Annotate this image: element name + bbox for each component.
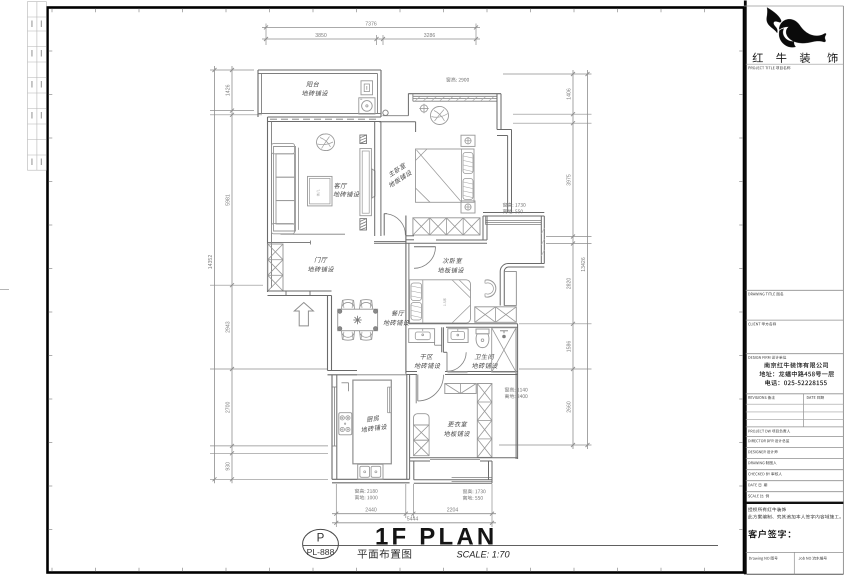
svg-text:SCALE: 1:70: SCALE: 1:70 bbox=[457, 550, 511, 560]
svg-text:7376: 7376 bbox=[365, 21, 377, 27]
svg-text:2700: 2700 bbox=[226, 402, 232, 414]
svg-text:3286: 3286 bbox=[424, 33, 436, 39]
svg-text:2660: 2660 bbox=[567, 401, 573, 413]
svg-text:3850: 3850 bbox=[315, 33, 327, 39]
svg-text:PL-888: PL-888 bbox=[307, 547, 335, 557]
svg-text:1F PLAN: 1F PLAN bbox=[375, 524, 497, 551]
svg-text:2204: 2204 bbox=[447, 508, 459, 514]
svg-text:2943: 2943 bbox=[226, 321, 232, 333]
svg-text:P: P bbox=[317, 533, 325, 545]
svg-text:930: 930 bbox=[226, 462, 232, 471]
svg-text:1586: 1586 bbox=[567, 341, 573, 353]
svg-text:1406: 1406 bbox=[567, 88, 573, 100]
svg-text:3975: 3975 bbox=[567, 174, 573, 186]
svg-text:13426: 13426 bbox=[581, 257, 587, 272]
svg-text:1426: 1426 bbox=[226, 84, 232, 96]
svg-text:5981: 5981 bbox=[226, 194, 232, 206]
svg-text:5444: 5444 bbox=[407, 517, 419, 523]
svg-text:2820: 2820 bbox=[567, 278, 573, 290]
svg-text:14352: 14352 bbox=[208, 255, 214, 270]
svg-text:2440: 2440 bbox=[365, 508, 377, 514]
